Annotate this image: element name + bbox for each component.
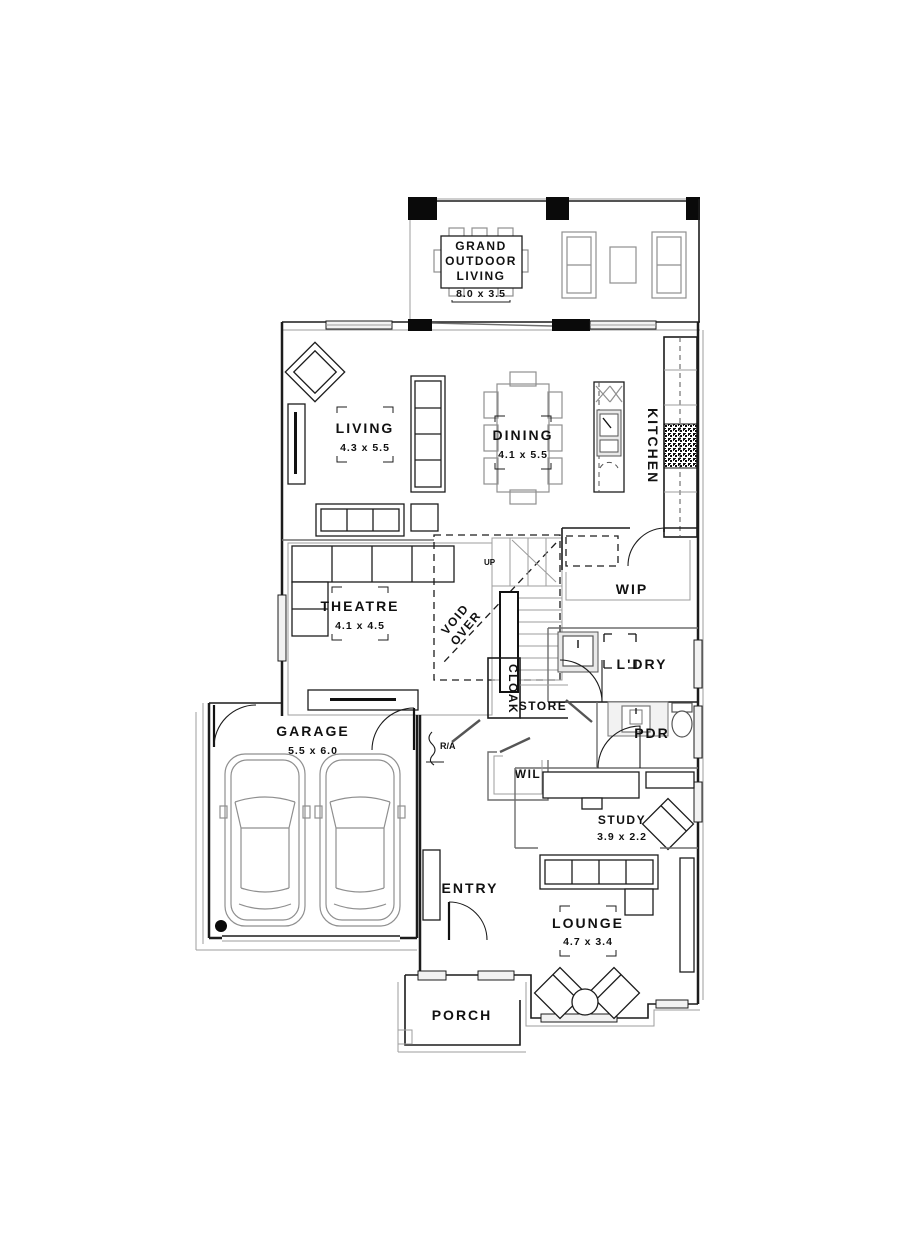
car-right [315, 754, 405, 926]
outdoor-living-line2: OUTDOOR [445, 254, 517, 268]
theatre-label-text: THEATRE [320, 598, 399, 614]
return-air-label: R/A [440, 741, 456, 751]
return-air: R/A [426, 732, 456, 765]
floor-waste [215, 920, 227, 932]
toilet [672, 703, 692, 737]
living-dims: 4.3 x 5.5 [340, 442, 390, 454]
column-pier [408, 197, 437, 220]
theatre-dims: 4.1 x 4.5 [335, 620, 385, 632]
sliding-door [432, 323, 552, 326]
lounge-dims: 4.7 x 3.4 [563, 936, 613, 948]
study-shelf [646, 772, 694, 788]
dining-label: DINING 4.1 x 5.5 [493, 416, 554, 469]
theatre-tv-cabinet [308, 690, 418, 710]
laundry-label-text: L'DRY [617, 656, 668, 672]
garage-label-text: GARAGE [276, 723, 349, 739]
front-door [449, 902, 487, 940]
window [694, 706, 702, 758]
walk-in-linen: WIL [488, 738, 548, 800]
outdoor-living-line1: GRAND [455, 239, 507, 253]
lounge-sofa [540, 855, 658, 915]
kitchen-label-text: KITCHEN [645, 408, 661, 484]
slider-pier [408, 319, 432, 331]
cooktop [664, 424, 697, 468]
garage-label: GARAGE 5.5 x 6.0 [276, 723, 349, 757]
outdoor-sofa-right [652, 232, 686, 298]
window [694, 782, 702, 822]
window [656, 1000, 688, 1008]
garage-door [222, 936, 400, 941]
study-desk [543, 772, 639, 809]
car-left [220, 754, 310, 926]
fridge-space [566, 536, 618, 566]
laundry: L'DRY [548, 628, 698, 702]
wil-label-text: WIL [515, 767, 542, 781]
slider-pier [552, 319, 590, 331]
lounge-cabinet [680, 858, 694, 972]
window [541, 1014, 617, 1022]
garage-entry-door [372, 708, 414, 750]
bay-window [520, 968, 700, 1026]
study-label-text: STUDY [598, 813, 646, 827]
outdoor-living-line3: LIVING [456, 269, 505, 283]
porch: PORCH [398, 975, 526, 1052]
floor-plan-drawing: GRAND OUTDOOR LIVING 8.0 x 3.5 [0, 0, 901, 1246]
window [694, 640, 702, 688]
lounge-label: LOUNGE 4.7 x 3.4 [552, 906, 624, 956]
grand-outdoor-living-area: GRAND OUTDOOR LIVING 8.0 x 3.5 [408, 197, 700, 322]
armchair-right [589, 968, 640, 1019]
theatre-label: THEATRE 4.1 x 4.5 [320, 587, 399, 640]
dining-label-text: DINING [493, 427, 554, 443]
garage-left-door [214, 705, 256, 747]
entry: ENTRY [405, 715, 520, 980]
island-bench [594, 382, 624, 492]
kitchen: KITCHEN [594, 337, 697, 537]
living-label: LIVING 4.3 x 5.5 [336, 407, 395, 462]
tv-cabinet [288, 404, 305, 484]
corner-unit [285, 342, 344, 401]
rear-wall [282, 319, 700, 331]
round-table [572, 989, 598, 1015]
store-cupboard: STORE [519, 685, 592, 722]
column-pier [686, 197, 700, 220]
study-chair [643, 799, 694, 850]
wip-pantry: WIP [562, 528, 698, 600]
wip-label-text: WIP [616, 581, 648, 597]
dining-dims: 4.1 x 5.5 [498, 449, 548, 461]
store-label-text: STORE [519, 699, 568, 713]
floor-plan-page: GRAND OUTDOOR LIVING 8.0 x 3.5 [0, 0, 901, 1246]
entry-sidelight [478, 971, 514, 980]
study-dims: 3.9 x 2.2 [597, 831, 647, 843]
window [278, 595, 286, 661]
living-label-text: LIVING [336, 420, 395, 436]
study-label: STUDY 3.9 x 2.2 [597, 813, 647, 843]
outdoor-living-dims: 8.0 x 3.5 [456, 288, 506, 300]
sofa-right [411, 376, 445, 492]
lounge: LOUNGE 4.7 x 3.4 [515, 848, 700, 1026]
garage: GARAGE 5.5 x 6.0 [196, 703, 417, 950]
laundry-trough [558, 632, 598, 672]
column-pier [546, 197, 569, 220]
void-label: VOID OVER [437, 599, 484, 648]
side-table [411, 504, 438, 531]
entry-sidelight [418, 971, 446, 980]
stairs-up-label: UP [484, 558, 496, 567]
store-door-leaf [566, 700, 592, 722]
garage-dims: 5.5 x 6.0 [288, 745, 338, 757]
outdoor-side-table [610, 247, 636, 283]
sofa-bottom [316, 504, 404, 536]
outdoor-sofa-left [562, 232, 596, 298]
entry-label-text: ENTRY [442, 880, 499, 896]
hall-door-leaf [452, 720, 480, 742]
kitchen-wall-bench [664, 337, 697, 537]
lounge-label-text: LOUNGE [552, 915, 624, 931]
wip-door-arc [628, 528, 664, 566]
dining-room: DINING 4.1 x 5.5 [484, 372, 562, 504]
living-room: LIVING 4.3 x 5.5 [285, 342, 445, 536]
wil-door-leaf [500, 738, 530, 752]
entry-cabinet [423, 850, 440, 920]
porch-label-text: PORCH [432, 1007, 493, 1023]
